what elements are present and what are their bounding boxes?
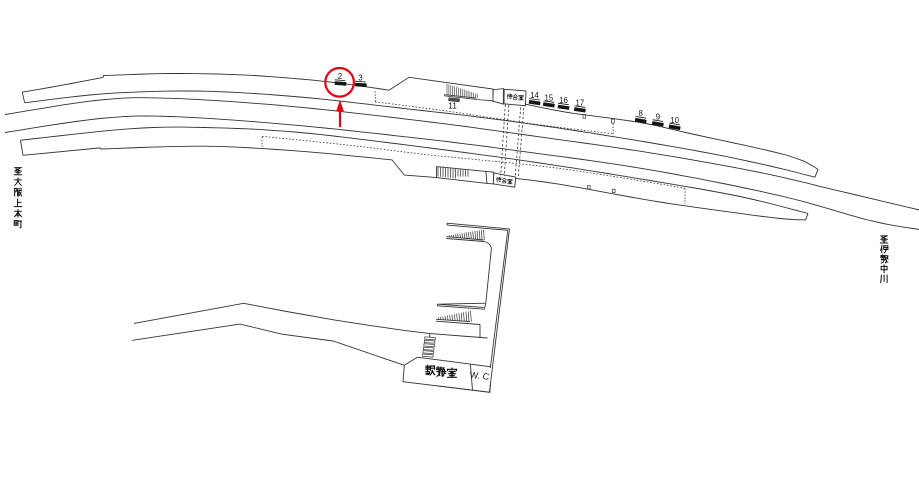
svg-text:2: 2 bbox=[338, 72, 342, 81]
svg-text:3: 3 bbox=[358, 73, 362, 82]
svg-text:11: 11 bbox=[448, 101, 457, 111]
